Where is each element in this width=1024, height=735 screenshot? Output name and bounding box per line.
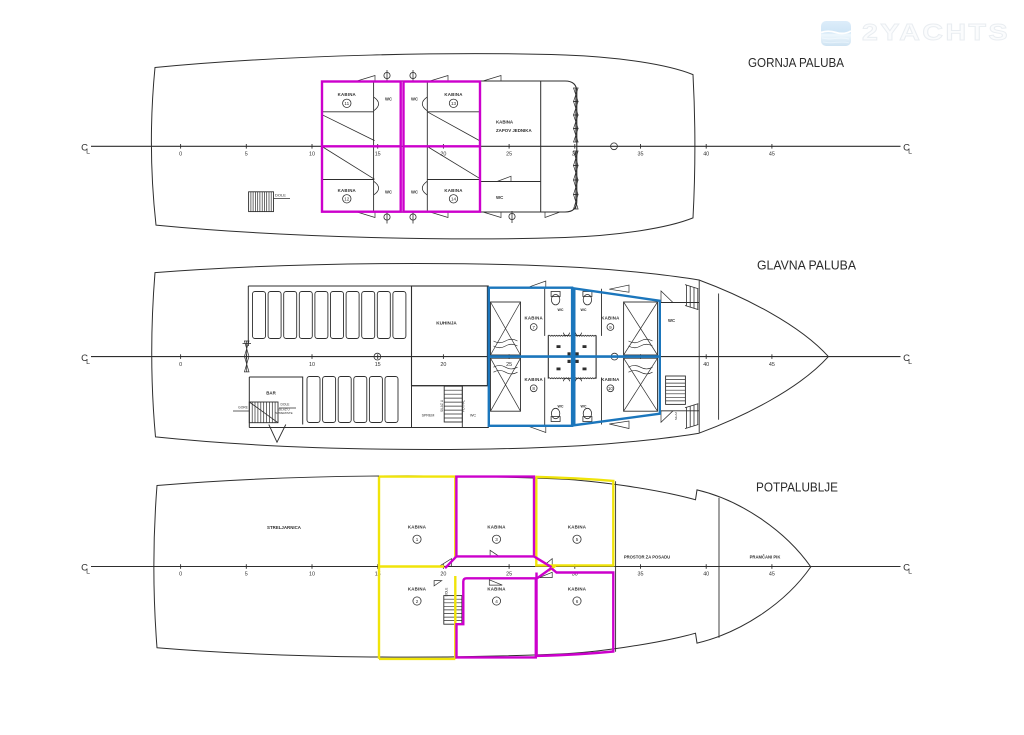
svg-text:25: 25 [506,152,512,158]
svg-text:14: 14 [451,197,457,202]
svg-text:45: 45 [769,572,775,578]
svg-text:0: 0 [179,362,182,368]
svg-text:45: 45 [769,152,775,158]
svg-text:40: 40 [703,572,709,578]
svg-text:KABINA: KABINA [568,587,587,592]
svg-text:4: 4 [495,599,498,604]
svg-text:GLAVNA PALUBA: GLAVNA PALUBA [757,258,856,273]
svg-text:L: L [908,359,912,366]
svg-text:3: 3 [495,537,498,542]
svg-text:KUHINJA: KUHINJA [436,321,457,326]
svg-text:PRAMČANI PIK: PRAMČANI PIK [750,555,781,560]
svg-text:10: 10 [608,386,614,391]
svg-text:WC: WC [470,414,477,418]
svg-text:5: 5 [245,152,248,158]
svg-text:WC: WC [385,97,392,102]
svg-text:KABINA: KABINA [408,587,427,592]
svg-text:2YACHTS: 2YACHTS [862,19,1010,45]
svg-text:KABINA: KABINA [496,120,514,125]
svg-text:20: 20 [440,572,446,578]
svg-text:35: 35 [638,152,644,158]
svg-text:35: 35 [638,572,644,578]
svg-text:KABINA: KABINA [444,92,463,97]
svg-text:POTPALUBLJE: POTPALUBLJE [756,480,838,495]
svg-text:L: L [86,569,90,576]
svg-text:GORE: GORE [238,406,249,410]
svg-text:WC: WC [581,308,587,312]
svg-text:15: 15 [375,152,381,158]
svg-text:WC: WC [558,308,564,312]
svg-text:KABINA: KABINA [338,188,357,193]
svg-text:11: 11 [344,101,349,106]
svg-text:8: 8 [532,386,535,391]
svg-text:40: 40 [703,362,709,368]
svg-text:KABINA: KABINA [525,316,544,321]
svg-text:0: 0 [179,152,182,158]
svg-text:12: 12 [344,197,350,202]
svg-text:5: 5 [576,537,579,542]
svg-text:KABINA: KABINA [444,188,463,193]
svg-text:KABINA: KABINA [601,377,620,382]
svg-text:1: 1 [416,537,419,542]
svg-text:5: 5 [245,572,248,578]
svg-text:10: 10 [309,152,315,158]
svg-text:STRELJARNICA: STRELJARNICA [267,525,302,530]
svg-text:BAR: BAR [266,391,276,396]
svg-text:7: 7 [532,325,535,330]
svg-text:10: 10 [309,362,315,368]
svg-text:GORNJA PALUBA: GORNJA PALUBA [748,55,844,70]
svg-text:WC: WC [411,97,418,102]
svg-text:KABINA: KABINA [487,587,506,592]
svg-text:2: 2 [416,599,419,604]
svg-text:DOLE: DOLE [445,588,449,597]
svg-text:WC: WC [496,195,504,200]
svg-text:WC: WC [558,405,564,409]
svg-text:L: L [908,569,912,576]
svg-text:L: L [908,149,912,156]
svg-text:13: 13 [451,101,457,106]
svg-text:SILAZ U: SILAZ U [440,399,444,412]
svg-text:KABINA: KABINA [408,525,427,530]
svg-text:0: 0 [179,572,182,578]
svg-text:KABINA: KABINA [338,92,357,97]
svg-text:PROSTOR ZA POSADU: PROSTOR ZA POSADU [624,555,670,560]
svg-text:KABINA: KABINA [525,377,544,382]
svg-text:25: 25 [506,362,512,368]
svg-text:SPREM: SPREM [422,414,435,418]
svg-text:KABINA: KABINA [568,525,587,530]
svg-text:45: 45 [769,362,775,368]
svg-text:WC: WC [668,318,675,323]
svg-text:WC: WC [385,190,392,195]
svg-text:25: 25 [506,572,512,578]
svg-text:20: 20 [440,362,446,368]
svg-text:WC: WC [581,405,587,409]
svg-text:KABINA: KABINA [601,316,620,321]
svg-text:15: 15 [375,362,381,368]
svg-text:L: L [86,149,90,156]
svg-text:KABINA: KABINA [487,525,506,530]
svg-text:10: 10 [309,572,315,578]
svg-text:DOLE: DOLE [281,403,291,407]
svg-text:ZAPOV JEDNIKA: ZAPOV JEDNIKA [496,128,532,133]
svg-text:6: 6 [576,599,579,604]
svg-text:L: L [86,359,90,366]
svg-text:SILAZ: SILAZ [674,412,678,421]
svg-text:9: 9 [609,325,612,330]
svg-text:DOLE: DOLE [275,193,286,198]
svg-text:WC: WC [411,190,418,195]
svg-text:SPREMISTE: SPREMISTE [275,411,292,415]
svg-text:POTPAL: POTPAL [462,400,466,413]
svg-text:40: 40 [703,152,709,158]
